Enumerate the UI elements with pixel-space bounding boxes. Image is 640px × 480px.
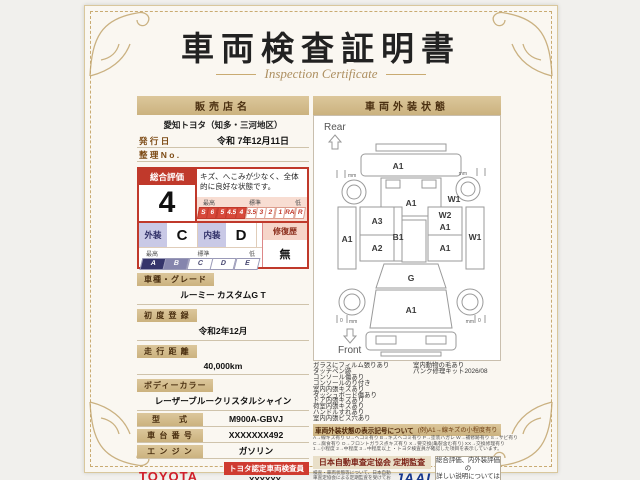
detail-label: 初 度 登 録 xyxy=(137,309,197,322)
note-item: パンク修理キット2026/08 xyxy=(413,369,501,375)
ref-no-row: 整 理 N o . xyxy=(137,148,309,162)
interior-value: D xyxy=(226,223,257,247)
overall-evaluation: 総合評価 4 キズ、へこみが少なく、全体的に良好な状態です。 最高 標準 低 xyxy=(139,169,307,221)
appraisal-association-bar: 日本自動車査定協会 定期監査 xyxy=(313,456,431,469)
inspector-id: XXXXXX xyxy=(249,476,281,480)
detail-value: XXXXXXX492 xyxy=(203,430,309,440)
detail-label: 車 台 番 号 xyxy=(137,429,203,442)
detail-label: 型 式 xyxy=(137,413,203,426)
panel-label-left-rear-door-upper: A3 xyxy=(372,216,383,226)
legend-example: (例)A1→線キズの小程度有り xyxy=(418,425,498,435)
detail-engine: エ ン ジ ン ガソリン xyxy=(137,444,309,459)
tread-unit: mm xyxy=(466,319,474,325)
detail-value: レーザーブルークリスタルシャイン xyxy=(137,393,309,411)
seller-header: 販売店名 xyxy=(137,96,309,115)
detail-first-registration: 初 度 登 録 令和2年12月 xyxy=(137,305,309,341)
tread-unit: mm xyxy=(459,171,467,177)
letter-cell: E xyxy=(233,258,260,270)
issue-date-value: 令和 7年12月11日 xyxy=(197,134,309,147)
scale-label-low: 低 xyxy=(295,198,301,207)
exterior-label: 外装 xyxy=(139,223,167,247)
subtitle-ornament xyxy=(216,74,256,75)
detail-mileage: 走 行 距 離 40,000km xyxy=(137,341,309,375)
evaluation-comment: キズ、へこみが少なく、全体的に良好な状態です。 xyxy=(197,169,307,197)
back-page-note: 総合評価、内外装評価の 詳しい説明については 裏面をご覧ください xyxy=(435,456,501,480)
legend-title: 車両外装状態の表示記号について xyxy=(315,425,414,435)
interior-label: 内装 xyxy=(198,223,226,247)
certificate-page: 車両検査証明書 Inspection Certificate 販売店名 愛知トヨ… xyxy=(0,0,640,480)
overall-evaluation-value: 4 xyxy=(139,185,195,221)
exterior-diagram: Rear xyxy=(313,115,501,361)
rear-label: Rear xyxy=(324,122,346,133)
scale-label-mid: 標準 xyxy=(197,249,209,258)
grade-scale: 最高 標準 低 S 6 5 4.5 4 3.5 3 xyxy=(197,197,307,221)
scale-label-mid: 標準 xyxy=(249,198,261,207)
letter-scale: 最高 標準 低 A B C D E xyxy=(139,247,262,267)
detail-label: 車種・グレード xyxy=(137,273,214,286)
repair-history-label: 修復歴 xyxy=(263,223,307,240)
subtitle-ornament xyxy=(386,74,426,75)
panel-label-right-rear-door-upper: W2 xyxy=(439,210,452,220)
car-top-view: A1 A1 A1 A3 A2 B1 W1 W2 A1 A1 W1 G A1 xyxy=(336,142,486,357)
front-label: Front xyxy=(338,345,361,356)
detail-value: ガソリン xyxy=(203,445,309,457)
exterior-state-header: 車両外装状態 xyxy=(313,96,501,115)
note-item: 室内内張ビス穴あり xyxy=(313,416,413,422)
right-column: 車両外装状態 Rear xyxy=(313,96,501,480)
appraisal-association-note: 検査・車両状態等について、日本自動車査定協会による定期監査を受けております。 xyxy=(313,470,393,480)
exterior-interior-row: 外装 C 内装 D xyxy=(139,223,262,247)
jaai-logo: JAAI xyxy=(395,470,431,480)
tread-unit: mm xyxy=(349,319,357,325)
evaluation-box: 総合評価 4 キズ、へこみが少なく、全体的に良好な状態です。 最高 標準 低 xyxy=(137,167,309,269)
detail-value: M900A-GBVJ xyxy=(203,414,309,424)
left-column: 販売店名 愛知トヨタ（知多・三河地区） 発 行 日 令和 7年12月11日 整 … xyxy=(137,96,309,480)
detail-model-code: 型 式 M900A-GBVJ xyxy=(137,412,309,427)
panel-label-right-rear-quarter: W1 xyxy=(448,194,461,204)
repair-history: 修復歴 無 xyxy=(262,223,307,267)
detail-value: 令和2年12月 xyxy=(137,323,309,341)
scale-label-high: 最高 xyxy=(203,198,215,207)
down-arrow-icon xyxy=(342,328,358,344)
detail-label: 走 行 距 離 xyxy=(137,345,197,358)
certificate-title: 車両検査証明書 xyxy=(85,22,557,70)
exterior-value: C xyxy=(167,223,198,247)
scale-label-high: 最高 xyxy=(146,249,158,258)
toyota-logo: TOYOTA xyxy=(139,469,198,480)
dealer-name: 愛知トヨタ（知多・三河地区） xyxy=(137,115,309,134)
overall-evaluation-label: 総合評価 xyxy=(139,169,195,185)
legend-header: 車両外装状態の表示記号について (例)A1→線キズの小程度有り xyxy=(313,424,501,436)
certificate-paper: 車両検査証明書 Inspection Certificate 販売店名 愛知トヨ… xyxy=(84,5,558,473)
issue-date-label: 発 行 日 xyxy=(137,135,197,147)
panel-label-left-center-pillar: B1 xyxy=(393,232,404,242)
repair-history-value: 無 xyxy=(263,240,307,267)
detail-value: ルーミー カスタムG T xyxy=(137,287,309,305)
detail-value: 40,000km xyxy=(137,359,309,375)
certificate-subtitle: Inspection Certificate xyxy=(85,66,557,82)
inspector-block: TOYOTA トヨタ認定車両検査員 XXXXXX xyxy=(137,461,309,480)
panel-label-tailgate: A1 xyxy=(406,198,417,208)
panel-label-left-side: A1 xyxy=(342,234,353,244)
tread-unit: mm xyxy=(348,173,356,179)
legend-line: 1→小程度 2→中程度 3→中程度以上 ・トヨタ検査員が確認した項目を表示してい… xyxy=(313,447,501,453)
ref-no-label: 整 理 N o . xyxy=(137,149,197,161)
right-footer: 日本自動車査定協会 定期監査 検査・車両状態等について、日本自動車査定協会による… xyxy=(313,456,501,480)
inspector-badge: トヨタ認定車両検査員 xyxy=(224,462,309,475)
tread-value-front-right: 0 xyxy=(478,318,481,324)
panel-label-right-rear-door: A1 xyxy=(440,222,451,232)
panel-label-left-rear-door-lower: A2 xyxy=(372,243,383,253)
detail-model-grade: 車種・グレード ルーミー カスタムG T xyxy=(137,269,309,305)
detail-label: ボディーカラー xyxy=(137,379,213,392)
condition-notes: ガラスにフィルム張りあり タッチペン跡 コンソール傷あり コンソールのり付き 室… xyxy=(313,363,501,422)
legend-line: A→線キズ有り U→ヘコミ有り B→キズヘコミ有り P→塗装ハガレ W→補修跡有… xyxy=(313,436,501,442)
front-direction: Front xyxy=(338,327,361,356)
panel-label-hood: A1 xyxy=(406,305,417,315)
panel-label-right-front-door: A1 xyxy=(440,243,451,253)
issue-date-row: 発 行 日 令和 7年12月11日 xyxy=(137,134,309,148)
panel-label-rear-bumper: A1 xyxy=(393,161,404,171)
panel-label-right-side: W1 xyxy=(469,232,482,242)
detail-chassis-no: 車 台 番 号 XXXXXXX492 xyxy=(137,428,309,443)
detail-label: エ ン ジ ン xyxy=(137,445,203,458)
panel-label-windshield: G xyxy=(408,273,415,283)
tread-value-front-left: 0 xyxy=(340,318,343,324)
legend-lines: A→線キズ有り U→ヘコミ有り B→キズヘコミ有り P→塗装ハガレ W→補修跡有… xyxy=(313,436,501,453)
detail-body-color: ボディーカラー レーザーブルークリスタルシャイン xyxy=(137,375,309,411)
scale-label-low: 低 xyxy=(249,249,255,258)
grade-cell: R xyxy=(293,207,306,219)
